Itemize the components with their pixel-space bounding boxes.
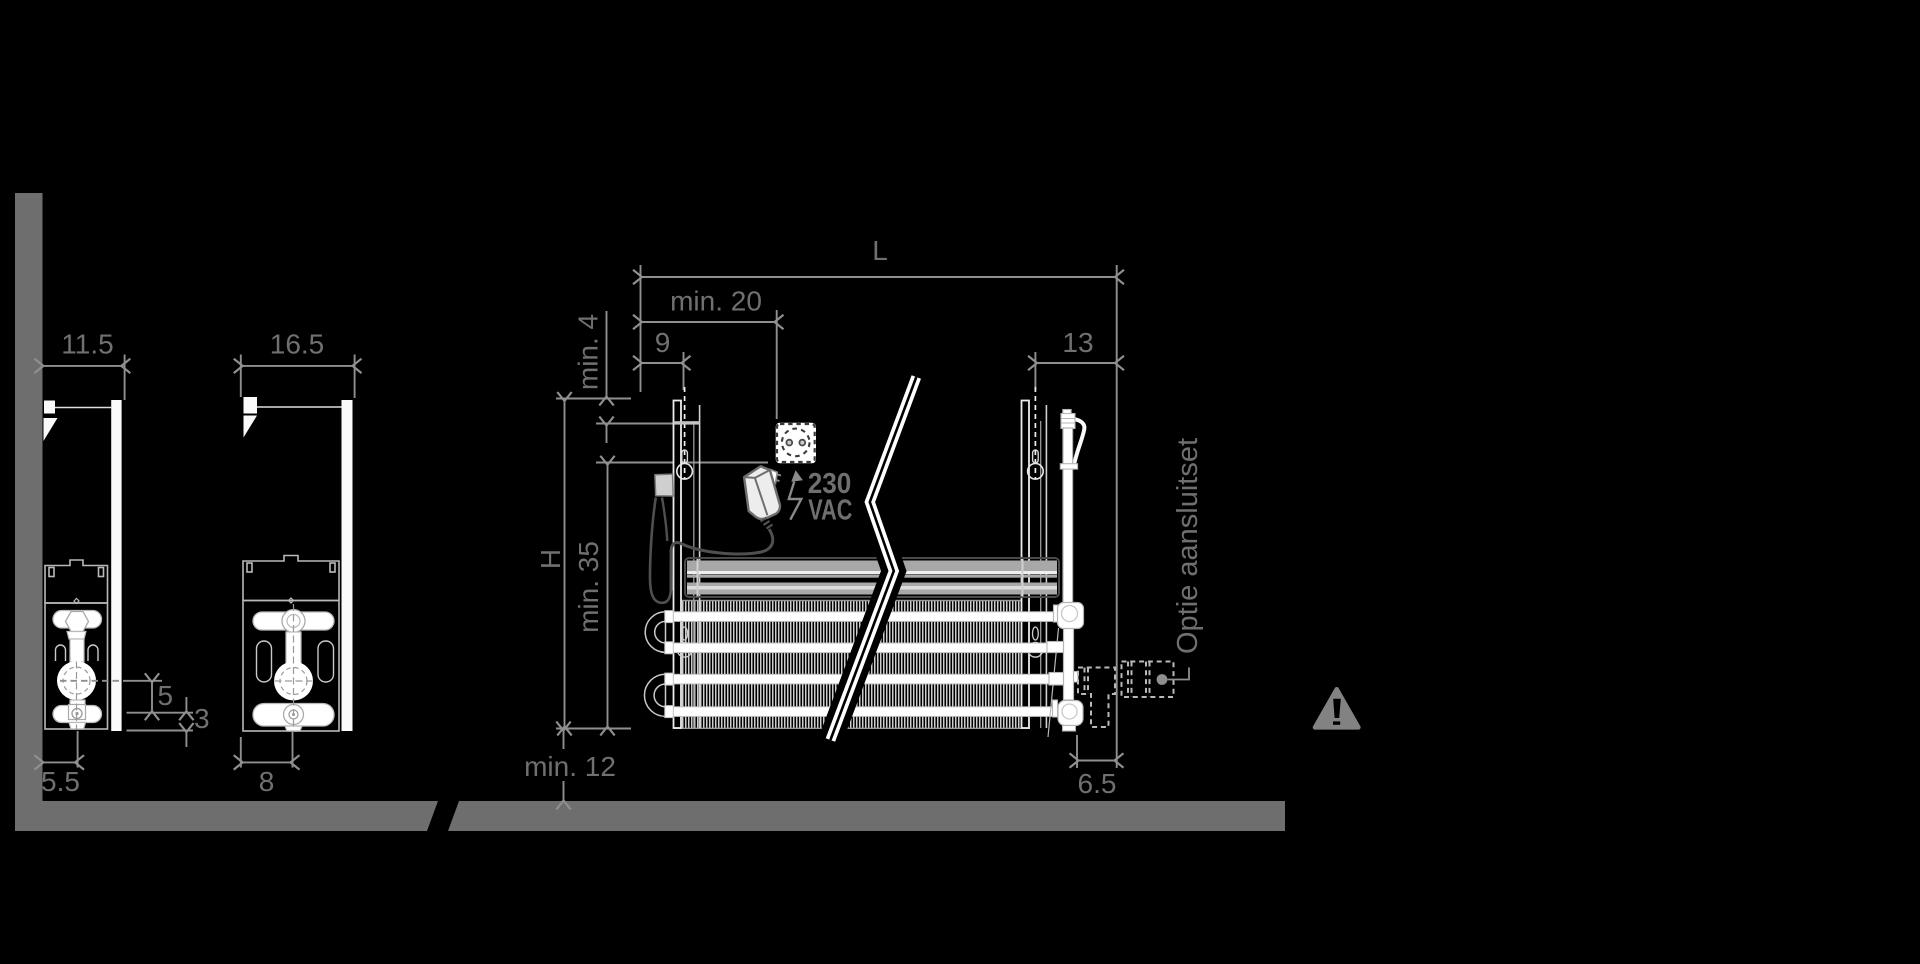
svg-text:5: 5 <box>158 680 174 711</box>
svg-text:5.5: 5.5 <box>41 766 80 797</box>
svg-text:min. 4: min. 4 <box>573 314 604 390</box>
svg-text:min. 12: min. 12 <box>524 751 616 782</box>
svg-text:16.5: 16.5 <box>270 329 325 360</box>
svg-text:VAC: VAC <box>808 494 852 526</box>
svg-text:11.5: 11.5 <box>61 329 113 360</box>
svg-text:Optie aansluitset: Optie aansluitset <box>1172 438 1204 654</box>
svg-text:6.5: 6.5 <box>1078 768 1117 799</box>
svg-text:L: L <box>872 235 888 266</box>
svg-text:min. 20: min. 20 <box>670 286 762 317</box>
svg-text:3: 3 <box>194 703 210 734</box>
svg-text:9: 9 <box>655 327 671 358</box>
svg-text:min. 35: min. 35 <box>573 541 604 633</box>
svg-text:H: H <box>535 549 566 569</box>
svg-text:13: 13 <box>1062 327 1093 358</box>
svg-text:8: 8 <box>259 766 275 797</box>
